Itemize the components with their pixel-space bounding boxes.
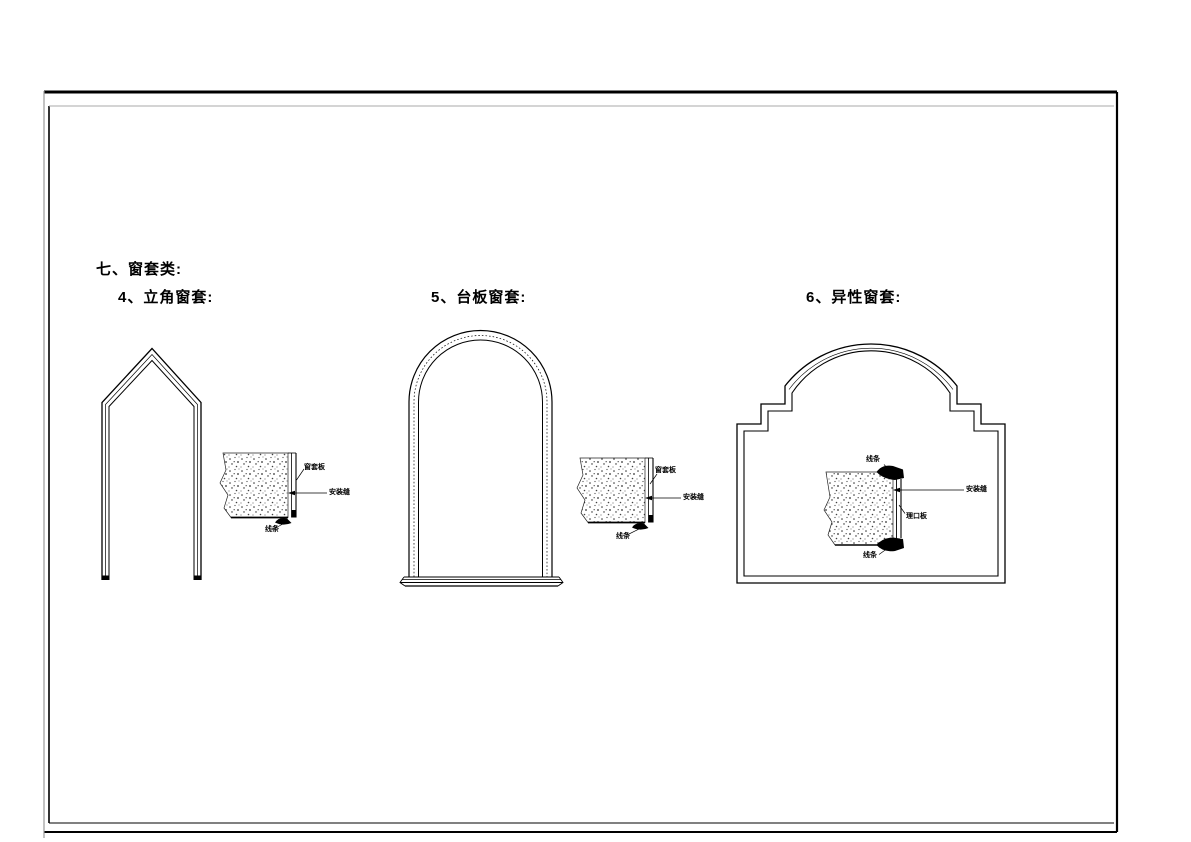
d1-casing-board-label: 窗套板 (304, 464, 325, 471)
d2-moulding-label: 线条 (616, 533, 630, 540)
d2-casing-board-label: 窗套板 (655, 467, 676, 474)
diagram-round-arch-casing (400, 330, 563, 586)
sheet-frame (44, 91, 1117, 838)
d1-install-seam-label: 安装缝 (329, 489, 350, 496)
sill-board (400, 577, 563, 586)
drawing-sheet: 七、窗套类: 4、立角窗套: 5、台板窗套: 6、异性窗套: 窗套板 安装缝 线… (0, 0, 1191, 842)
section-heading: 七、窗套类: (96, 262, 182, 279)
diagram-shaped-casing (737, 344, 1005, 583)
d2-install-seam-label: 安装缝 (683, 494, 704, 501)
diagram-pointed-arch-casing (102, 349, 201, 581)
diagram3-heading: 6、异性窗套: (806, 290, 901, 307)
diagram1-heading: 4、立角窗套: (118, 290, 213, 307)
d3-install-seam-label: 安装缝 (966, 486, 987, 493)
d3-opening-board-label: 理口板 (906, 513, 927, 520)
d3-moulding-bottom-label: 线条 (863, 552, 877, 559)
d3-moulding-top-label: 线条 (866, 456, 880, 463)
diagram2-heading: 5、台板窗套: (431, 290, 526, 307)
cad-linework (0, 0, 1191, 842)
d1-moulding-label: 线条 (265, 526, 279, 533)
detail-section-3 (824, 465, 964, 555)
